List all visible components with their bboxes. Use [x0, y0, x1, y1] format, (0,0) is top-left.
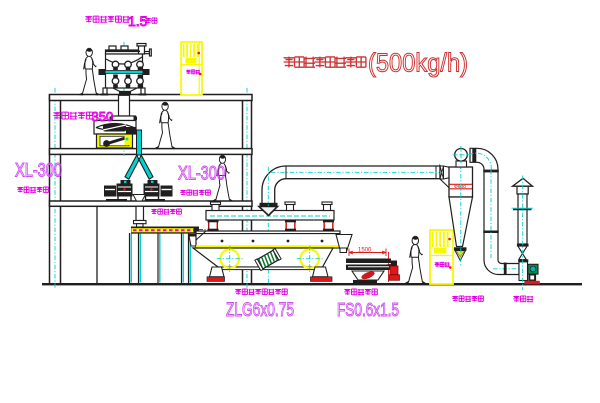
svg-text:XL-300: XL-300 — [178, 164, 225, 185]
svg-text:XL-300: XL-300 — [15, 161, 62, 182]
svg-text:(500kg/h): (500kg/h) — [368, 48, 468, 78]
svg-text:Φ600: Φ600 — [454, 184, 466, 190]
svg-text:ZLG6x0.75: ZLG6x0.75 — [226, 300, 294, 321]
svg-text:1.5: 1.5 — [128, 13, 148, 29]
svg-text:FS0.6x1.5: FS0.6x1.5 — [337, 300, 399, 320]
svg-text:350: 350 — [92, 109, 114, 124]
svg-text:1500: 1500 — [358, 248, 372, 254]
